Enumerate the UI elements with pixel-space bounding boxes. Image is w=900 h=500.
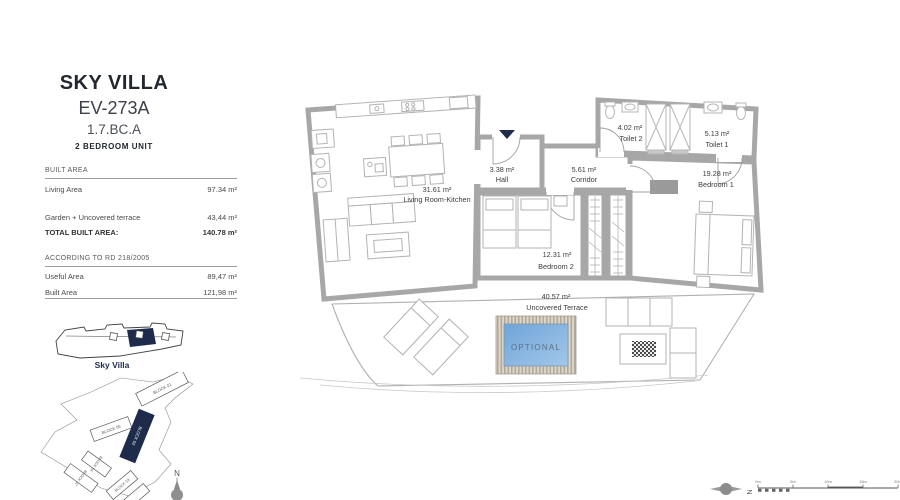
project-title: SKY VILLA [36, 72, 192, 95]
compass-label: N [745, 489, 752, 494]
site-block-01: BLOCK 01 [136, 372, 189, 406]
title-block: SKY VILLA EV-273A 1.7.BC.A 2 BEDROOM UNI… [36, 72, 192, 151]
key-plan-marker [162, 333, 170, 341]
room-name: Bedroom 2 [538, 262, 574, 271]
room-area: 5.61 m² [572, 165, 597, 174]
room-name: Toilet 2 [619, 134, 642, 143]
room-area: 3.38 m² [490, 165, 515, 174]
pool-label: OPTIONAL [511, 343, 561, 352]
area-value: 121,98 m² [203, 288, 237, 297]
room-name: Corridor [571, 175, 598, 184]
wc-toilet2 [606, 106, 615, 119]
key-plan-label: Sky Villa [95, 360, 130, 370]
room-area: 4.02 m² [618, 123, 643, 132]
area-row-total: TOTAL BUILT AREA: 140.78 m² [45, 228, 237, 237]
rotated-compass-icon: N [710, 483, 752, 495]
unit-ref: 1.7.BC.A [36, 122, 192, 137]
area-label: Useful Area [45, 272, 84, 281]
built-area-header: BUILT AREA [45, 167, 237, 174]
footer-bar: N 0m 5m 10m 15m 20m [700, 458, 900, 500]
room-area: 12.31 m² [543, 250, 572, 259]
scale-label: 15m [859, 479, 867, 484]
site-block-05: BLOCK 05 [90, 417, 132, 442]
unit-code: EV-273A [36, 98, 192, 119]
area-row-living: Living Area 97.34 m² [45, 185, 237, 194]
area-value: 97.34 m² [207, 185, 237, 194]
wc-toilet1 [737, 107, 746, 120]
area-row-garden: Garden + Uncovered terrace 43,44 m² [45, 213, 237, 222]
site-plan: BLOCK 01 BLOCK 05 BLOCK 02 BLOCK 04 BLOC… [25, 372, 230, 500]
dining-table [389, 143, 445, 177]
area-row-useful: Useful Area 89,47 m² [45, 272, 237, 281]
room-area: 19.28 m² [703, 169, 732, 178]
outdoor-table-texture [632, 341, 656, 357]
room-area: 5.13 m² [705, 129, 730, 138]
area-value: 89,47 m² [207, 272, 237, 281]
room-hall [478, 137, 542, 190]
scale-label: 20m [894, 479, 900, 484]
key-plan-marker [110, 333, 118, 341]
unit-floor-plan: OPTIONAL 3.38 m² Hall 5.61 m² Corridor 3… [280, 80, 790, 400]
according-header: ACCORDING TO RD 218/2005 [45, 255, 237, 262]
key-plan-building-outline [56, 323, 183, 358]
unit-type: 2 BEDROOM UNIT [36, 142, 192, 151]
room-area: 40.57 m² [542, 292, 571, 301]
area-row-built: Built Area 121,98 m² [45, 288, 237, 297]
site-boundary [41, 376, 193, 496]
divider [45, 266, 237, 267]
scale-labels: 0m 5m 10m 15m 20m [755, 479, 900, 484]
floor-plan-page: SKY VILLA EV-273A 1.7.BC.A 2 BEDROOM UNI… [0, 0, 900, 500]
key-plan-marker [136, 331, 144, 339]
scale-label: 0m [755, 479, 761, 484]
room-name: Bedroom 1 [698, 180, 734, 189]
site-block-02-highlighted: BLOCK 02 [119, 409, 154, 464]
area-label: Built Area [45, 288, 77, 297]
divider [45, 178, 237, 179]
area-label: TOTAL BUILT AREA: [45, 228, 118, 237]
room-area: 31.61 m² [423, 185, 452, 194]
north-compass-icon: N [171, 469, 183, 500]
room-name: Uncovered Terrace [526, 303, 588, 312]
scale-label: 5m [790, 479, 796, 484]
scale-label: 10m [824, 479, 832, 484]
pool-optional: OPTIONAL [496, 316, 576, 374]
scale-bar: 0m 5m 10m 15m 20m [755, 479, 900, 492]
room-name: Toilet 1 [705, 140, 728, 149]
divider [45, 298, 237, 299]
area-value: 43,44 m² [207, 213, 237, 222]
area-value: 140.78 m² [203, 228, 237, 237]
outdoor-sofa [606, 298, 672, 326]
area-label: Living Area [45, 185, 82, 194]
north-label: N [174, 469, 180, 478]
room-name: Living Room-Kitchen [403, 195, 470, 204]
key-plan: Sky Villa [50, 315, 195, 370]
room-name: Hall [496, 175, 509, 184]
area-label: Garden + Uncovered terrace [45, 213, 140, 222]
